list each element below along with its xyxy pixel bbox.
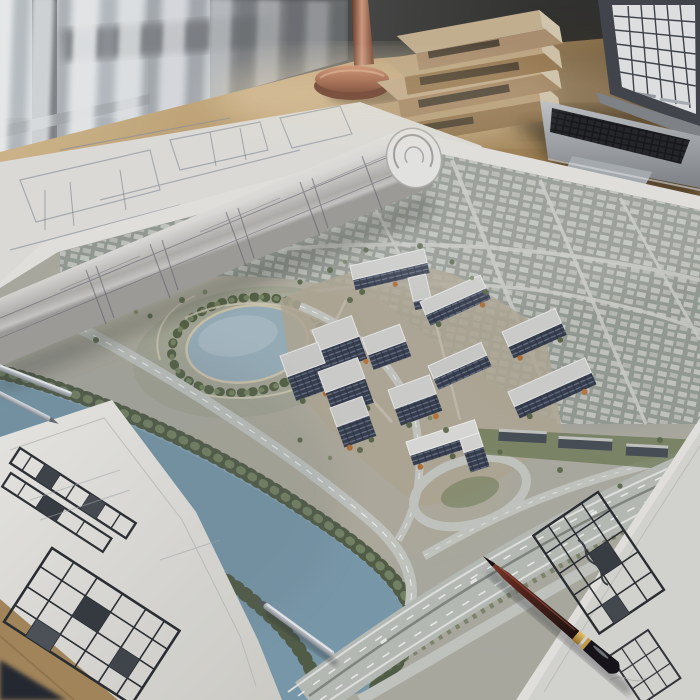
scene-canvas — [0, 0, 700, 700]
photo-architect-desk-scene — [0, 0, 700, 700]
vignette-tint — [0, 0, 700, 700]
